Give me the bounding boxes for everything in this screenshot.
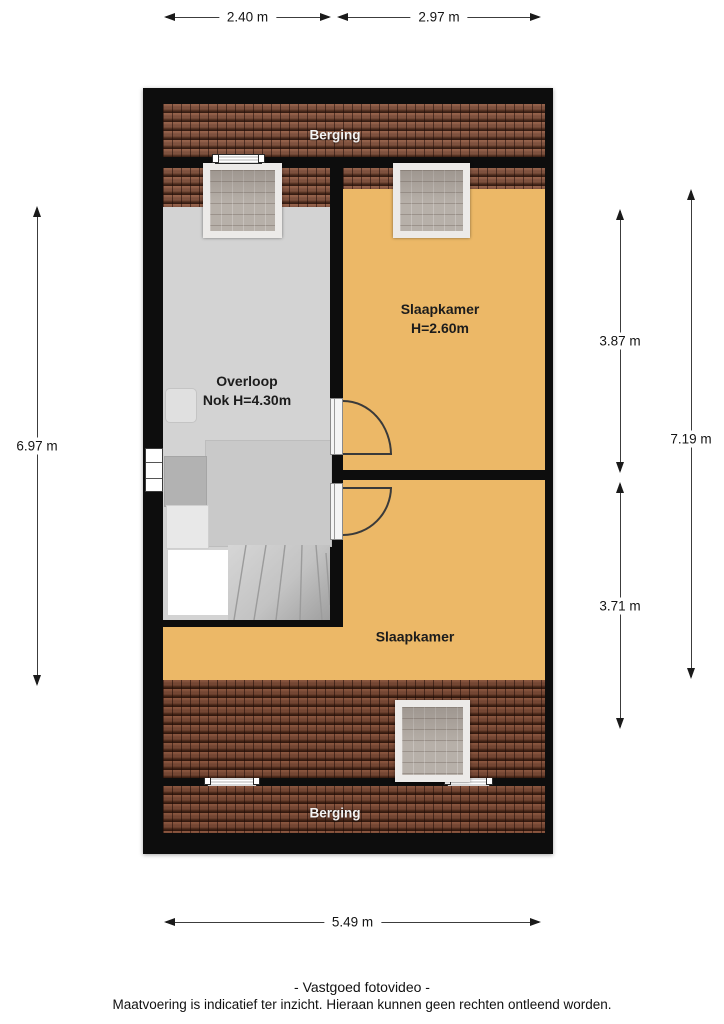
window-cap bbox=[212, 154, 219, 163]
room-slaapkamer-bottom-left bbox=[163, 627, 343, 680]
stairs-landing bbox=[168, 550, 228, 615]
dimension-value: 2.40 m bbox=[219, 9, 276, 26]
skylight-window-top-left bbox=[203, 163, 282, 238]
arrow-up-icon bbox=[687, 189, 695, 200]
dimension-left-total: 6.97 m bbox=[29, 207, 45, 685]
stairs-treads-icon bbox=[228, 545, 330, 620]
room-label-slaapkamer-bottom: Slaapkamer bbox=[376, 628, 455, 647]
floorplan-page: 2.40 m 2.97 m 6.97 m 3.87 m 3.71 m 7.19 … bbox=[0, 0, 724, 1024]
dimension-right-upper: 3.87 m bbox=[612, 210, 628, 472]
window-cap bbox=[258, 154, 265, 163]
door-opening-top bbox=[330, 398, 343, 455]
cabinet-block bbox=[205, 440, 332, 547]
arrow-right-icon bbox=[530, 13, 541, 21]
appliance-light bbox=[166, 505, 209, 549]
footer: - Vastgoed fotovideo - Maatvoering is in… bbox=[0, 979, 724, 1013]
dimension-value: 3.71 m bbox=[591, 597, 648, 614]
room-label-berging-top: Berging bbox=[309, 126, 360, 145]
dimension-top-right: 2.97 m bbox=[338, 9, 540, 25]
footer-disclaimer: Maatvoering is indicatief ter inzicht. H… bbox=[0, 996, 724, 1013]
dimension-value: 6.97 m bbox=[8, 438, 65, 455]
arrow-down-icon bbox=[616, 462, 624, 473]
arrow-down-icon bbox=[687, 668, 695, 679]
arrow-left-icon bbox=[164, 918, 175, 926]
arrow-up-icon bbox=[33, 206, 41, 217]
dimension-value: 2.97 m bbox=[410, 9, 467, 26]
room-label-slaapkamer-top: Slaapkamer H=2.60m bbox=[401, 300, 480, 338]
arrow-down-icon bbox=[616, 718, 624, 729]
skylight-window-top-right bbox=[393, 163, 470, 238]
room-height-note: H=2.60m bbox=[401, 319, 480, 338]
radiator bbox=[165, 388, 197, 423]
arrow-right-icon bbox=[320, 13, 331, 21]
arrow-up-icon bbox=[616, 482, 624, 493]
appliance-dark bbox=[164, 456, 207, 507]
room-height-note: Nok H=4.30m bbox=[203, 391, 291, 410]
arrow-left-icon bbox=[337, 13, 348, 21]
wall-window-left bbox=[145, 448, 163, 492]
footer-brand: - Vastgoed fotovideo - bbox=[0, 979, 724, 996]
room-name: Slaapkamer bbox=[401, 300, 480, 319]
dimension-value: 5.49 m bbox=[324, 914, 381, 931]
arrow-right-icon bbox=[530, 918, 541, 926]
room-name: Overloop bbox=[203, 372, 291, 391]
door-opening-bottom bbox=[330, 483, 343, 540]
dimension-value: 7.19 m bbox=[662, 430, 719, 447]
building-outline: Berging bbox=[143, 88, 553, 854]
dimension-value: 3.87 m bbox=[591, 333, 648, 350]
roof-window-symbol-top bbox=[215, 154, 262, 164]
room-name: Slaapkamer bbox=[376, 628, 455, 647]
stairs bbox=[228, 545, 330, 620]
dimension-bottom: 5.49 m bbox=[165, 914, 540, 930]
arrow-up-icon bbox=[616, 209, 624, 220]
room-label-berging-bottom: Berging bbox=[309, 804, 360, 823]
roof-bottom-main bbox=[163, 680, 545, 778]
arrow-left-icon bbox=[164, 13, 175, 21]
room-label-overloop: Overloop Nok H=4.30m bbox=[203, 372, 291, 410]
dimension-top-left: 2.40 m bbox=[165, 9, 330, 25]
skylight-window-bottom-glass bbox=[395, 700, 470, 782]
arrow-down-icon bbox=[33, 675, 41, 686]
dimension-right-lower: 3.71 m bbox=[612, 483, 628, 728]
dimension-right-total: 7.19 m bbox=[683, 190, 699, 678]
